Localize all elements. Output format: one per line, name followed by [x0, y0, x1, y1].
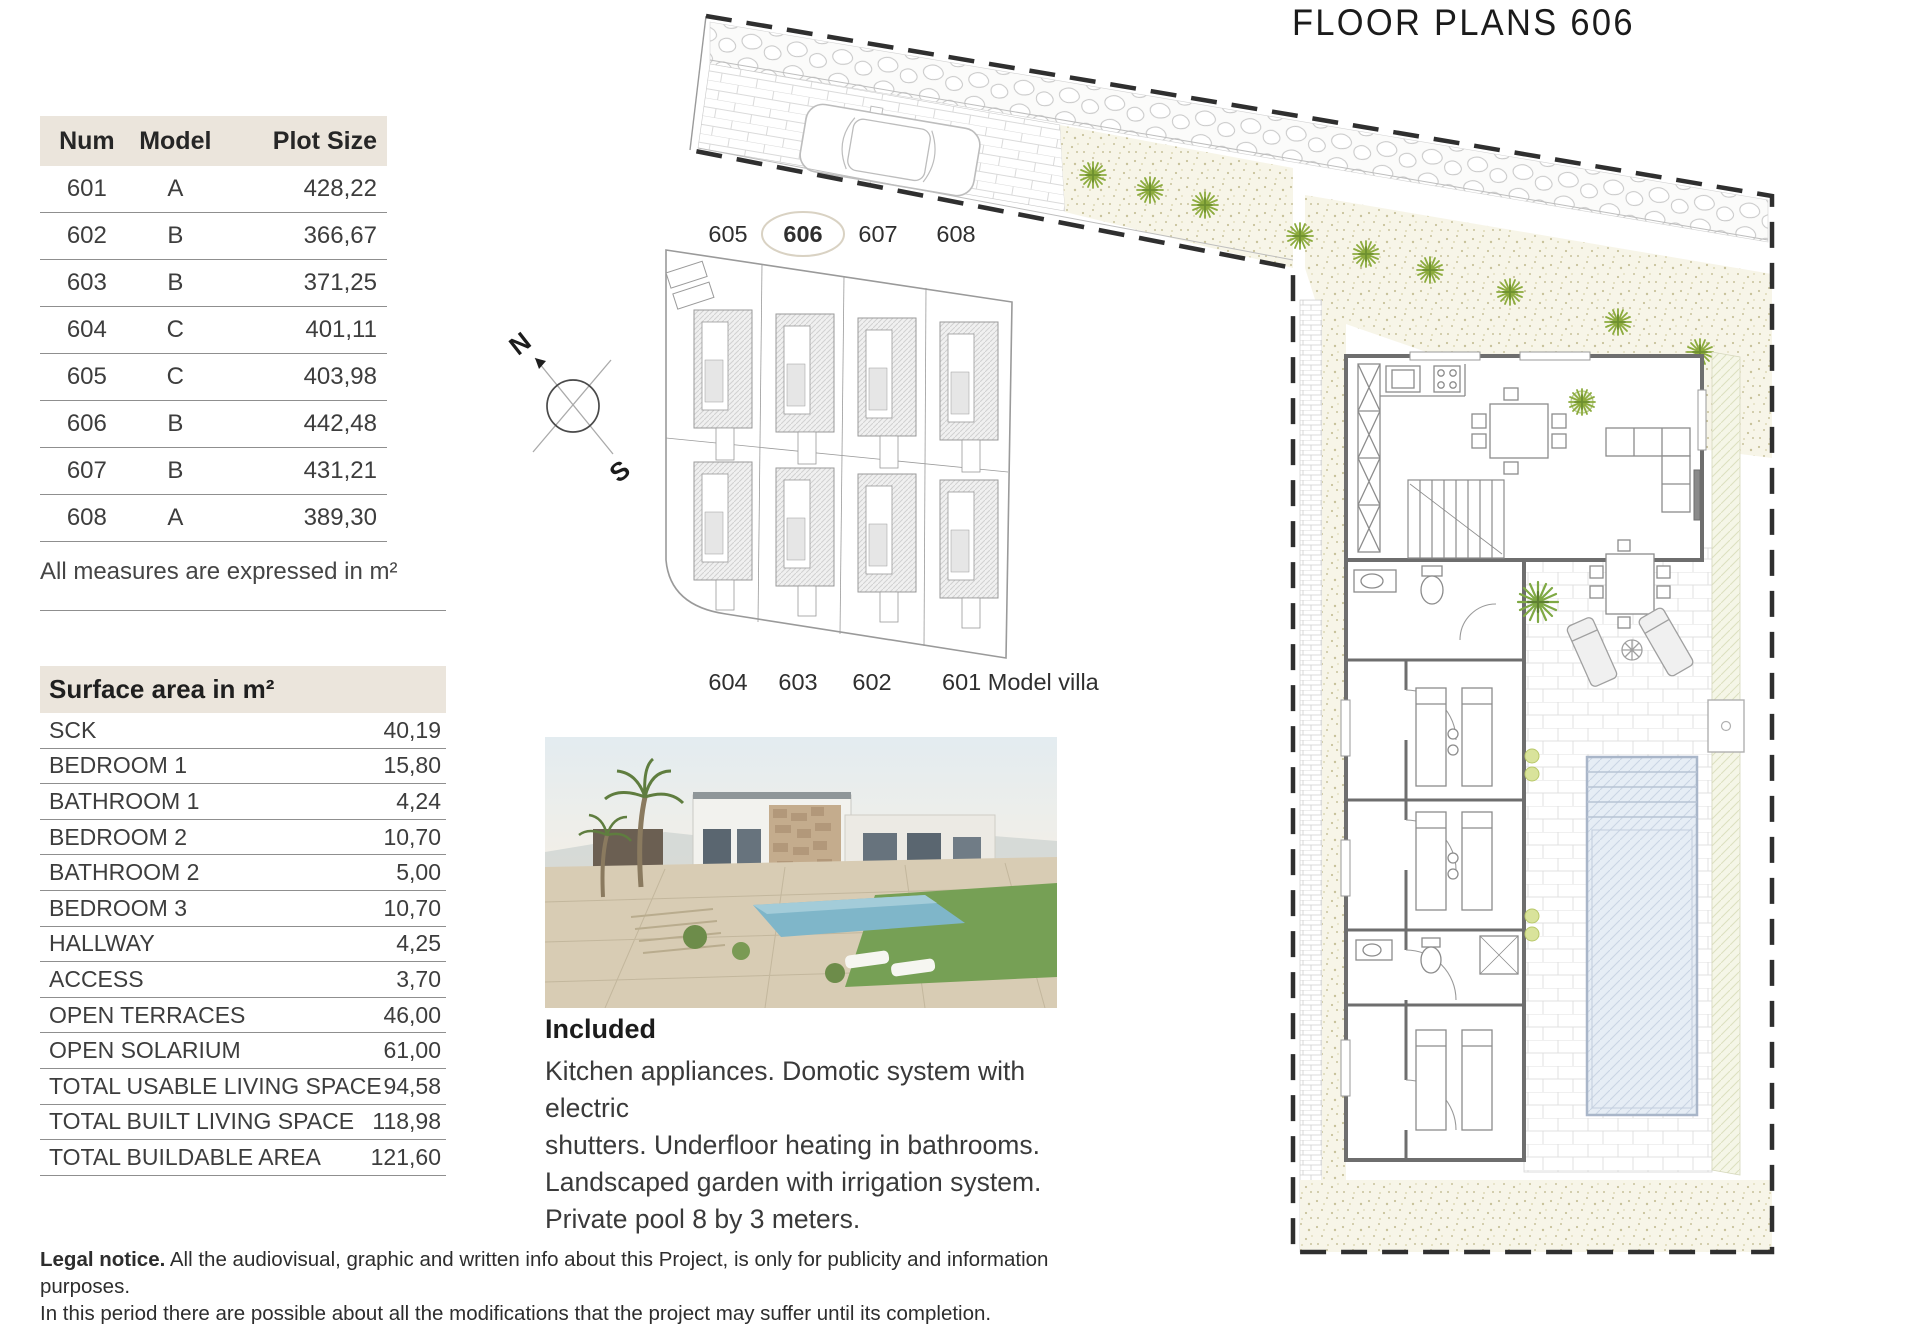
cell: 371,25	[217, 269, 387, 297]
cell: 428,22	[217, 175, 387, 203]
cell: 605	[40, 363, 134, 391]
side-garden-wall	[1300, 300, 1322, 1252]
cell: C	[134, 316, 217, 344]
cell: 94,58	[383, 1073, 441, 1100]
cell: B	[134, 222, 217, 250]
garden-gate	[1708, 700, 1744, 752]
table-row: BEDROOM 115,80	[40, 749, 446, 785]
cell: 601	[40, 175, 134, 203]
cell: 366,67	[217, 222, 387, 250]
cell: C	[134, 363, 217, 391]
table-row: 607B431,21	[40, 448, 387, 495]
cell: 607	[40, 457, 134, 485]
table-row: 603B371,25	[40, 260, 387, 307]
cell: B	[134, 269, 217, 297]
cell: 4,25	[396, 930, 441, 957]
cell: TOTAL USABLE LIVING SPACE	[49, 1073, 382, 1100]
plot-table-header: Num Model Plot Size	[40, 116, 387, 166]
table-row: SCK40,19	[40, 713, 446, 749]
cell: BATHROOM 1	[49, 788, 199, 815]
cell: B	[134, 410, 217, 438]
measures-note: All measures are expressed in m²	[40, 558, 397, 586]
table-row: OPEN SOLARIUM61,00	[40, 1033, 446, 1069]
table-row: BATHROOM 25,00	[40, 855, 446, 891]
cell: TOTAL BUILDABLE AREA	[49, 1144, 321, 1171]
cell: TOTAL BUILT LIVING SPACE	[49, 1108, 354, 1135]
cell: A	[134, 504, 217, 532]
surface-area-table: Surface area in m² SCK40,19BEDROOM 115,8…	[40, 666, 446, 1176]
table-row: TOTAL USABLE LIVING SPACE94,58	[40, 1069, 446, 1105]
indoor-plant-icon	[1569, 389, 1595, 415]
table-row: BEDROOM 210,70	[40, 820, 446, 856]
plot-table-body: 601A428,22602B366,67603B371,25604C401,11…	[40, 166, 387, 542]
table-row: 601A428,22	[40, 166, 387, 213]
cell: A	[134, 175, 217, 203]
tv	[1694, 470, 1700, 520]
plot-table: Num Model Plot Size 601A428,22602B366,67…	[40, 116, 387, 542]
cell: SCK	[49, 717, 96, 744]
cell: BATHROOM 2	[49, 859, 199, 886]
table-row: TOTAL BUILT LIVING SPACE118,98	[40, 1105, 446, 1141]
private-pool	[1587, 757, 1697, 1115]
cell: 442,48	[217, 410, 387, 438]
table-row: 605C403,98	[40, 354, 387, 401]
cell: 118,98	[372, 1108, 441, 1135]
cell: 403,98	[217, 363, 387, 391]
cell: B	[134, 457, 217, 485]
cell: 431,21	[217, 457, 387, 485]
table-row: 608A389,30	[40, 495, 387, 542]
table-row: 602B366,67	[40, 213, 387, 260]
bottom-garden-gravel	[1300, 1180, 1772, 1252]
legal-notice-label: Legal notice.	[40, 1248, 165, 1271]
table-row: 604C401,11	[40, 307, 387, 354]
cell: 389,30	[217, 504, 387, 532]
column-header: Num	[40, 127, 134, 156]
side-garden-gravel	[1322, 300, 1346, 1252]
cell: 46,00	[383, 1002, 441, 1029]
surface-table-header: Surface area in m²	[40, 666, 446, 713]
column-header: Plot Size	[217, 127, 387, 156]
cell: 121,60	[371, 1144, 441, 1171]
cell: 604	[40, 316, 134, 344]
surface-table-body: SCK40,19BEDROOM 115,80BATHROOM 14,24BEDR…	[40, 713, 446, 1176]
table-row: BEDROOM 310,70	[40, 891, 446, 927]
cell: 5,00	[396, 859, 441, 886]
cell: 3,70	[396, 966, 441, 993]
stairs	[1408, 480, 1504, 558]
cell: 15,80	[383, 752, 441, 779]
table-row: HALLWAY4,25	[40, 927, 446, 963]
cell: 606	[40, 410, 134, 438]
cell: 602	[40, 222, 134, 250]
table-row: 606B442,48	[40, 401, 387, 448]
cell: 608	[40, 504, 134, 532]
cell: 401,11	[217, 316, 387, 344]
cell: BEDROOM 3	[49, 895, 187, 922]
divider-line	[40, 610, 446, 611]
table-row: ACCESS3,70	[40, 962, 446, 998]
table-row: OPEN TERRACES46,00	[40, 998, 446, 1034]
cell: HALLWAY	[49, 930, 155, 957]
compass-north-label: N	[505, 330, 536, 361]
terrace-palm	[1518, 582, 1558, 622]
cell: 10,70	[383, 895, 441, 922]
cell: 603	[40, 269, 134, 297]
cell: BEDROOM 1	[49, 752, 187, 779]
cell: 4,24	[396, 788, 441, 815]
cell: OPEN SOLARIUM	[49, 1037, 241, 1064]
compass-arrow	[535, 358, 546, 369]
table-row: BATHROOM 14,24	[40, 784, 446, 820]
cell: 40,19	[383, 717, 441, 744]
column-header: Model	[134, 127, 217, 156]
floor-plan-606	[560, 0, 1800, 1280]
cell: ACCESS	[49, 966, 144, 993]
side-path-hatch	[1712, 352, 1740, 1175]
cell: 61,00	[383, 1037, 441, 1064]
legal-notice-line2: In this period there are possible about …	[40, 1302, 991, 1325]
table-row: TOTAL BUILDABLE AREA121,60	[40, 1140, 446, 1176]
cell: BEDROOM 2	[49, 824, 187, 851]
cell: 10,70	[383, 824, 441, 851]
cell: OPEN TERRACES	[49, 1002, 245, 1029]
